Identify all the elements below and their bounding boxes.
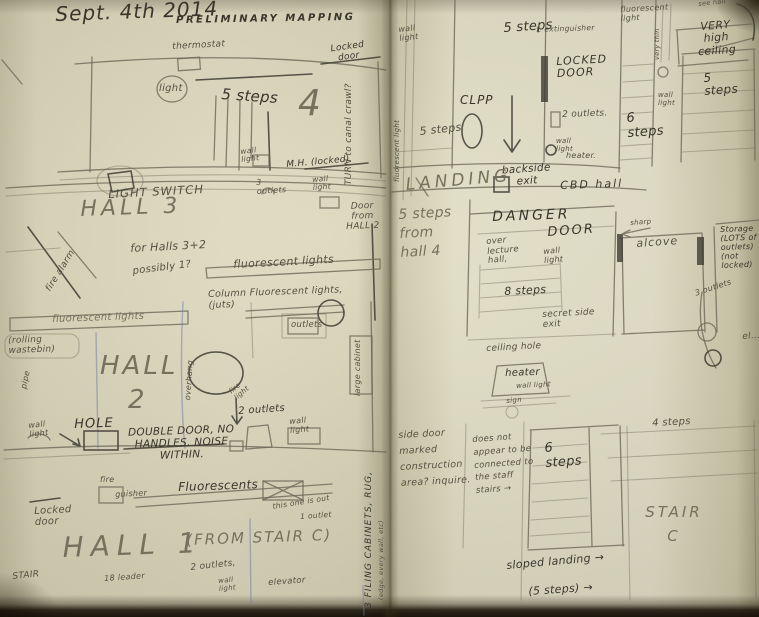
label-cbd-hall: CBD hall (560, 178, 623, 193)
label-extinguisher-bottom: guisher (115, 489, 147, 500)
label-hall4-wall-light: wall light (240, 145, 266, 164)
label-danger: DANGER (492, 207, 571, 225)
label-this-one-out: this one is out (272, 494, 330, 511)
label-overhang: overhang (184, 360, 196, 401)
label-steps6-bottom: 6 steps (544, 439, 582, 471)
label-hall3-outlets: 3 outlets (256, 177, 287, 197)
label-not-connected-note: does not appear to be connected to the s… (472, 429, 542, 497)
label-fire-alarm: fire alarm (44, 248, 77, 293)
label-hall1-wall-light: wall light (218, 576, 241, 594)
label-steps8: 8 steps (504, 284, 547, 299)
label-from-stair-c: (FROM STAIR C) (186, 527, 332, 549)
label-alcove: alcove (636, 235, 679, 250)
label-large-cabinet: large cabinet (354, 339, 363, 396)
label-steps6-top: 6 steps (626, 110, 662, 141)
label-mh-locked: M.H. (locked) (286, 154, 350, 170)
label-one-outlet: 1 outlet (300, 511, 332, 522)
label-storage: Storage (LOTS of outlets) (not locked) (720, 224, 759, 270)
label-outlets-box: outlets (291, 321, 322, 331)
label-over-lecture: over lecture hall, (486, 233, 540, 266)
label-turn-note: TURN to canal crawl? (344, 83, 354, 185)
label-secret-exit: secret side exit (542, 307, 605, 330)
label-column-note: Column Fluorescent lights, (juts) (208, 285, 347, 311)
label-elevator: elevator (268, 576, 306, 588)
label-hall2-wall-light-right: wall light (289, 416, 316, 436)
label-hall3-wall-light: wall light (312, 174, 337, 192)
label-mid-heater: heater (505, 367, 540, 379)
label-rl-heater: heater. (566, 152, 596, 161)
label-hall1-outlets: 2 outlets, (190, 558, 236, 573)
label-rl-wall-light: wall light (398, 23, 426, 44)
label-ceiling-hole: ceiling hole (486, 341, 542, 354)
label-pipe: pipe (20, 370, 33, 390)
label-hall4-steps: 5 steps (221, 86, 279, 107)
label-mid-wall-light: wall light (516, 381, 551, 391)
label-clpp: CLPP (460, 94, 494, 107)
label-sloped-landing: sloped landing → (506, 551, 605, 572)
label-very-thin: very thin (654, 28, 661, 60)
label-wastebin: (rolling wastebin) (8, 334, 75, 356)
label-leader: 18 leader (104, 572, 145, 584)
label-rt-fluor: fluorescent light (620, 3, 677, 24)
label-hall1-locked-door: Locked door (34, 503, 83, 528)
label-rl-locked-door: LOCKED DOOR (556, 53, 609, 80)
label-side-door-note: side door marked construction area? inqu… (398, 424, 473, 492)
label-possibly: possibly 1? (132, 259, 192, 277)
label-hall4-number: 4 (298, 84, 321, 124)
label-rl-steps-left: 5 steps (419, 122, 462, 139)
label-outlets3-right: 3 outlets (694, 278, 733, 298)
label-stair-c: STAIR C (644, 500, 704, 548)
label-danger-wall-light: wall light (543, 246, 570, 266)
label-hall2-number: 2 (128, 386, 145, 415)
notebook-photo: Sept. 4th 2014 PRELIMINARY MAPPING therm… (0, 0, 759, 617)
label-stair-cut: STAIR (12, 569, 40, 582)
label-elev-partial: el… (742, 331, 759, 342)
label-from-hall4: 5 steps from hall 4 (398, 203, 457, 263)
label-fire-light: fire light (228, 376, 255, 402)
label-five-steps: (5 steps) → (528, 581, 593, 598)
label-filing-small: (edge, every wall, etc) (378, 520, 385, 600)
label-hall4-locked-door: Locked door (326, 39, 370, 65)
label-mid-sign: sign (506, 397, 522, 406)
label-very-high-ceiling: VERY high ceiling (686, 18, 746, 59)
label-rl-fluor-vert: fluorescent light (394, 120, 402, 182)
label-hall1-name: HALL 1 (62, 527, 203, 563)
label-sharp: sharp (630, 219, 652, 228)
page-title: PRELIMINARY MAPPING (176, 12, 356, 26)
label-door-from-hall2: Door from HALL 2 (344, 201, 381, 232)
label-thermostat: thermostat (172, 39, 225, 52)
label-rt-wall-light: wall light (658, 92, 680, 108)
label-landing: LANDING (405, 167, 512, 195)
label-for-halls: for Halls 3+2 (130, 239, 207, 255)
label-hall2-wall-light-left: wall light (28, 419, 56, 440)
label-hall2-outlets: 2 outlets (238, 403, 285, 417)
label-danger-door: DOOR (547, 223, 595, 241)
label-hole: HOLE (74, 417, 114, 433)
label-hall2-name: HALL (100, 352, 178, 381)
label-hall3-fluorescent: fluorescent lights (233, 254, 334, 272)
label-steps5-right: 5 steps (703, 70, 739, 99)
label-hall3-name: HALL 3 (80, 194, 182, 222)
label-steps4: 4 steps (652, 416, 691, 429)
label-see-hall: see hall (698, 0, 726, 8)
label-extinguisher-top: fire (100, 476, 114, 485)
label-hall2-fluorescent: fluorescent lights (52, 311, 144, 325)
label-double-door-note: DOUBLE DOOR, NO HANDLES. NOISE WITHIN. (122, 424, 241, 463)
label-rl-outlets: 2 outlets. (562, 108, 608, 120)
label-hall4-light: light (159, 83, 183, 94)
label-fluorescents: Fluorescents (178, 478, 258, 494)
label-rl-extinguisher: f. extinguisher (536, 24, 595, 34)
label-filing-cabinets: 3 FILING CABINETS, RUG, (364, 471, 374, 608)
